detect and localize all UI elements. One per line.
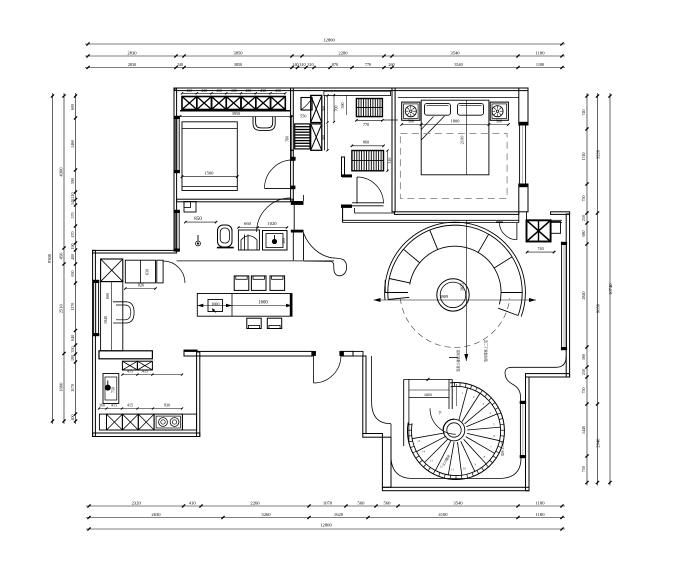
- svg-text:1170: 1170: [70, 384, 75, 392]
- svg-text:750: 750: [581, 388, 586, 394]
- svg-text:15: 15: [417, 439, 421, 443]
- svg-text:混凝土楼板浇筑: 混凝土楼板浇筑: [456, 349, 461, 372]
- svg-text:860: 860: [363, 140, 369, 145]
- svg-text:190: 190: [70, 244, 75, 250]
- svg-text:3850: 3850: [233, 50, 243, 55]
- svg-text:2840: 2840: [581, 292, 586, 300]
- svg-text:4300: 4300: [58, 167, 63, 177]
- svg-text:600: 600: [70, 104, 75, 110]
- svg-text:430: 430: [216, 89, 222, 93]
- svg-text:1020: 1020: [267, 221, 277, 226]
- svg-text:660: 660: [244, 221, 252, 226]
- svg-text:430: 430: [260, 89, 266, 93]
- svg-text:旋转楼梯上二层: 旋转楼梯上二层: [483, 340, 488, 362]
- svg-text:500: 500: [496, 118, 502, 123]
- svg-text:11: 11: [451, 467, 454, 471]
- svg-text:140: 140: [70, 199, 75, 205]
- svg-text:250: 250: [581, 215, 586, 221]
- svg-text:630: 630: [145, 269, 150, 275]
- svg-text:13: 13: [430, 459, 434, 463]
- svg-text:740: 740: [581, 110, 586, 116]
- svg-text:1620: 1620: [334, 512, 344, 517]
- svg-text:360: 360: [99, 403, 105, 407]
- svg-text:470: 470: [70, 232, 75, 238]
- svg-text:1180: 1180: [536, 62, 544, 67]
- svg-text:310: 310: [387, 158, 392, 164]
- svg-text:830: 830: [164, 402, 170, 407]
- svg-text:415: 415: [142, 369, 148, 374]
- svg-text:430: 430: [245, 89, 251, 93]
- svg-text:410: 410: [189, 500, 197, 505]
- svg-text:550: 550: [300, 114, 306, 119]
- svg-text:850: 850: [194, 216, 202, 222]
- svg-text:2100: 2100: [460, 135, 465, 145]
- svg-text:踏步上二层: 踏步上二层: [500, 441, 505, 456]
- svg-text:750: 750: [111, 387, 116, 393]
- svg-text:500: 500: [408, 118, 414, 123]
- svg-text:1600: 1600: [258, 300, 268, 305]
- svg-text:10740: 10740: [608, 283, 613, 295]
- svg-text:430: 430: [275, 89, 281, 93]
- svg-text:560: 560: [384, 500, 392, 505]
- svg-text:400: 400: [70, 254, 75, 260]
- svg-text:1370: 1370: [70, 303, 75, 311]
- svg-text:560: 560: [581, 354, 586, 360]
- svg-text:1180: 1180: [535, 512, 545, 517]
- svg-text:14: 14: [422, 450, 426, 454]
- svg-text:450: 450: [58, 252, 63, 260]
- svg-text:300: 300: [282, 238, 286, 244]
- svg-text:760: 760: [285, 136, 290, 142]
- svg-text:10: 10: [463, 467, 467, 471]
- svg-text:310: 310: [299, 62, 305, 67]
- svg-text:770: 770: [365, 62, 371, 67]
- svg-text:1070: 1070: [323, 500, 333, 505]
- svg-text:415: 415: [127, 402, 133, 407]
- svg-text:210: 210: [70, 193, 75, 199]
- svg-text:400: 400: [70, 415, 75, 421]
- svg-text:415: 415: [111, 402, 117, 407]
- svg-text:4100: 4100: [438, 512, 448, 517]
- svg-text:560: 560: [358, 500, 366, 505]
- svg-text:2830: 2830: [127, 50, 137, 55]
- svg-text:1440: 1440: [581, 426, 586, 434]
- svg-text:250: 250: [581, 369, 586, 375]
- svg-text:310: 310: [307, 62, 313, 67]
- svg-text:350: 350: [70, 347, 75, 353]
- svg-text:12800: 12800: [323, 38, 335, 43]
- svg-text:760: 760: [321, 135, 326, 141]
- svg-text:9050: 9050: [596, 303, 601, 313]
- svg-text:680: 680: [581, 231, 586, 237]
- svg-text:2320: 2320: [132, 500, 142, 505]
- svg-text:700: 700: [334, 106, 339, 112]
- svg-text:3850: 3850: [234, 62, 242, 67]
- svg-text:2280: 2280: [338, 50, 348, 55]
- svg-text:1740: 1740: [581, 153, 586, 161]
- svg-text:2830: 2830: [128, 62, 136, 67]
- svg-text:750: 750: [581, 466, 586, 472]
- svg-text:750: 750: [581, 196, 586, 202]
- svg-text:260: 260: [388, 62, 394, 67]
- svg-text:2940: 2940: [596, 438, 601, 448]
- svg-text:1180: 1180: [535, 50, 545, 55]
- svg-text:640: 640: [70, 335, 75, 341]
- svg-text:770: 770: [363, 122, 369, 127]
- svg-text:240: 240: [292, 62, 298, 67]
- svg-text:630: 630: [70, 271, 75, 277]
- svg-text:3909: 3909: [440, 294, 448, 299]
- svg-text:3950: 3950: [232, 111, 240, 116]
- svg-text:826: 826: [138, 282, 144, 287]
- svg-text:3260: 3260: [261, 512, 271, 517]
- svg-text:2260: 2260: [250, 500, 260, 505]
- svg-text:3540: 3540: [453, 500, 463, 505]
- svg-text:740: 740: [537, 246, 543, 251]
- svg-text:3825: 3825: [460, 283, 465, 291]
- svg-text:1180: 1180: [535, 500, 545, 505]
- svg-text:1600: 1600: [58, 382, 63, 392]
- svg-text:1800: 1800: [451, 118, 461, 123]
- svg-text:430: 430: [201, 89, 207, 93]
- svg-text:1500: 1500: [205, 170, 215, 175]
- svg-text:180: 180: [70, 355, 75, 361]
- svg-text:3220: 3220: [596, 149, 601, 159]
- svg-text:240: 240: [177, 62, 183, 67]
- svg-text:590: 590: [70, 178, 75, 184]
- svg-text:12: 12: [440, 465, 444, 469]
- svg-text:430: 430: [231, 89, 237, 93]
- svg-text:2630: 2630: [151, 512, 161, 517]
- svg-text:870: 870: [332, 62, 338, 67]
- svg-text:600: 600: [105, 293, 110, 299]
- svg-text:415: 415: [127, 369, 133, 374]
- svg-text:12800: 12800: [320, 523, 332, 528]
- svg-text:1800: 1800: [424, 393, 432, 397]
- svg-text:760: 760: [321, 106, 326, 112]
- svg-text:430: 430: [186, 89, 192, 93]
- svg-text:9300: 9300: [47, 253, 52, 263]
- svg-text:1940: 1940: [103, 316, 108, 324]
- svg-text:3540: 3540: [454, 62, 462, 67]
- svg-text:3540: 3540: [450, 50, 460, 55]
- svg-text:570: 570: [70, 213, 75, 219]
- svg-text:1460: 1460: [70, 140, 75, 148]
- svg-text:590: 590: [340, 103, 345, 109]
- svg-text:2510: 2510: [58, 304, 63, 314]
